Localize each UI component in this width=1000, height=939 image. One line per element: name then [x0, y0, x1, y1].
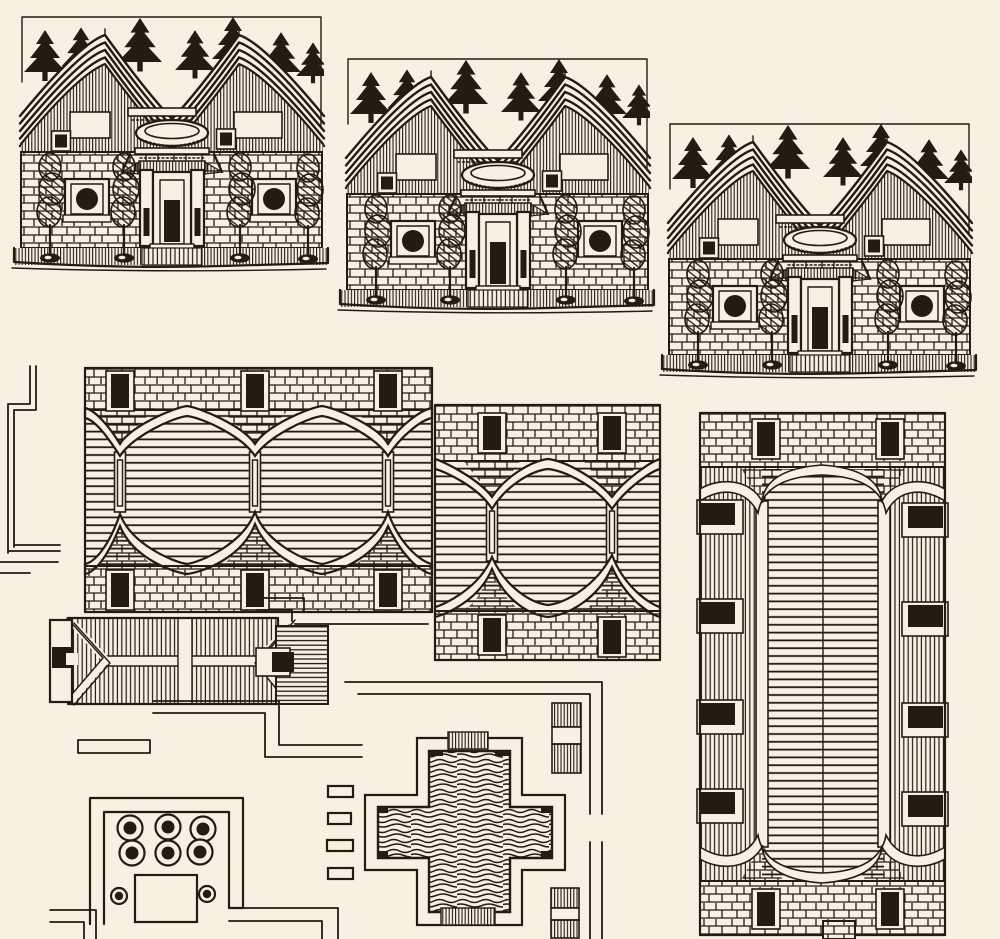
garden-pavilion [135, 875, 197, 922]
roof-plan-small [435, 405, 660, 660]
entry-stub [823, 921, 855, 939]
pond-steps-bottom [441, 908, 495, 925]
ink-drawing-sheet [0, 0, 1000, 939]
great-hall-plan [697, 413, 948, 939]
drawing [0, 0, 1000, 939]
hip-roof-hall [50, 618, 328, 705]
pond-steps-top [448, 732, 488, 749]
roof-plan-large [85, 368, 432, 612]
